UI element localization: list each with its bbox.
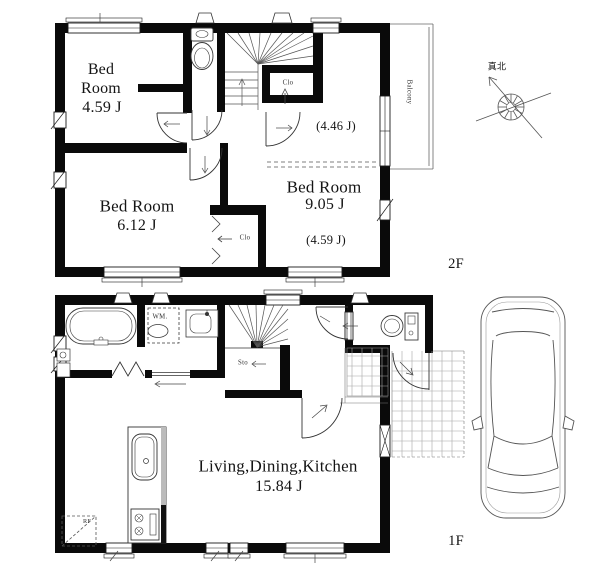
room-label-bedroom-small-line1: Bed — [88, 62, 114, 78]
room-area-bedroom-right: 9.05 J — [305, 197, 344, 213]
room-label-bedroom-right: Bed Room — [287, 179, 362, 196]
kitchen-1f — [128, 427, 166, 543]
refrigerator-label: RF — [83, 519, 91, 525]
storage-label: Sto — [238, 361, 248, 368]
true-north-label: 真北 — [488, 63, 506, 72]
room-area-bedroom-left: 6.12 J — [117, 218, 156, 234]
toilet-2f — [191, 28, 213, 70]
closet-label-upper-2f: Clo — [283, 81, 294, 88]
stairs-1f — [225, 305, 288, 367]
toilet-1f — [343, 313, 418, 340]
car-top-view — [472, 297, 574, 518]
vents-2f — [196, 13, 292, 23]
closet-label-lower-2f: Clo — [240, 236, 251, 243]
porch-tiles — [392, 351, 464, 457]
room-label-bedroom-left: Bed Room — [100, 198, 175, 215]
room-label-bedroom-small-line2: Room — [81, 81, 121, 97]
floor-label-1f: 1F — [448, 534, 464, 549]
room-label-ldk: Living,Dining,Kitchen — [198, 458, 357, 475]
room-area-bedroom-right-lower: (4.59 J) — [306, 234, 346, 247]
room-area-ldk: 15.84 J — [255, 479, 303, 495]
washing-machine-label: WM. — [152, 315, 167, 322]
floor-label-2f: 2F — [448, 257, 464, 272]
room-area-bedroom-right-upper: (4.46 J) — [316, 120, 356, 133]
floorplan-canvas: Bed Room 4.59 J Bed Room 6.12 J Bed Room… — [0, 0, 600, 573]
room-area-bedroom-small: 4.59 J — [82, 100, 121, 116]
partition-dashes-2f — [267, 162, 378, 167]
balcony-label: Balcony — [405, 80, 412, 105]
compass-icon — [476, 77, 551, 138]
bathroom-1f — [57, 308, 144, 377]
